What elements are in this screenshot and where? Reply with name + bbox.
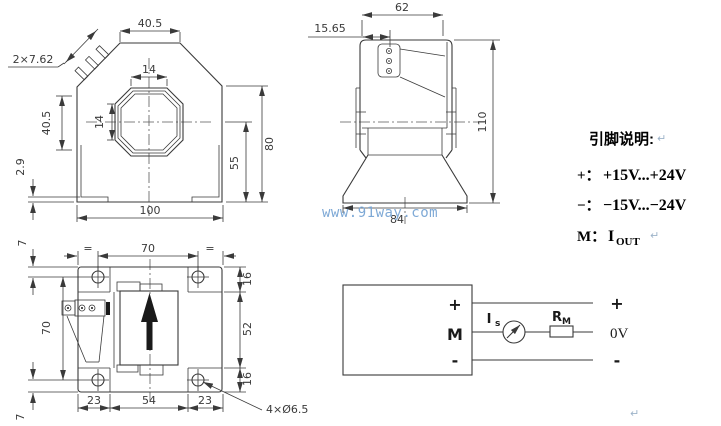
output-minus-label: - <box>614 351 621 370</box>
current-sensor-dimension-drawing: 40.5 2×7.62 14 14 40.5 <box>0 0 721 426</box>
current-label-sub: s <box>495 319 500 329</box>
svg-text:100: 100 <box>140 204 161 217</box>
svg-text:40.5: 40.5 <box>138 17 163 30</box>
svg-text:70: 70 <box>40 321 53 335</box>
resistor-label-sub: M <box>562 317 571 327</box>
side-column <box>368 128 442 155</box>
svg-text:110: 110 <box>476 112 489 133</box>
svg-text:16: 16 <box>241 372 254 386</box>
dim-front-foot: 2.9 <box>14 158 80 220</box>
resistor-label: R <box>552 310 562 325</box>
dim-plan-edge-to-hole-bottom: 7 <box>14 362 78 421</box>
dim-front-top-width: 40.5 <box>120 17 180 42</box>
plan-connector <box>62 300 110 362</box>
pin-m-value-sub: OUT <box>616 236 641 248</box>
ammeter <box>503 321 525 343</box>
paragraph-mark-bottom: ↵ <box>630 407 639 420</box>
dim-front-pin-pitch: 2×7.62 <box>8 29 98 67</box>
terminal-plus-label: + <box>448 295 461 314</box>
svg-text:70: 70 <box>141 242 155 255</box>
side-body-outline <box>360 40 452 158</box>
svg-text:23: 23 <box>198 394 212 407</box>
dim-front-inner-height: 55 <box>225 122 252 202</box>
svg-text:16: 16 <box>241 272 254 286</box>
dim-plan-right-heights: 16 52 16 <box>224 267 254 392</box>
terminal-minus-label: - <box>452 351 459 370</box>
svg-text:7: 7 <box>14 414 27 421</box>
svg-text:14: 14 <box>142 63 156 76</box>
pin-m-value: I <box>608 228 614 245</box>
side-view: 62 15.65 110 84 <box>308 1 500 226</box>
svg-text:62: 62 <box>395 1 409 14</box>
output-plus-label: + <box>610 294 623 313</box>
front-view: 40.5 2×7.62 14 14 40.5 <box>8 17 276 222</box>
svg-text:80: 80 <box>263 137 276 151</box>
svg-text:40.5: 40.5 <box>40 111 53 136</box>
terminal-m-label: M <box>447 325 463 344</box>
connection-circuit: + M - I s R M + 0V - <box>343 285 629 375</box>
svg-text:=: = <box>205 242 214 255</box>
svg-text:14: 14 <box>93 115 106 129</box>
watermark: www.91way.com <box>322 205 438 221</box>
paragraph-mark-iout: ↵ <box>650 229 659 242</box>
front-pins <box>75 46 109 80</box>
side-base-outline <box>343 155 467 203</box>
dim-plan-hole-span-vertical: 70 <box>40 277 87 380</box>
pin-description: 引脚说明: ↵ +： +15V...+24V −： −15V...−24V M：… <box>577 130 687 248</box>
paragraph-mark-title: ↵ <box>657 132 666 145</box>
dim-front-left-height: 40.5 <box>40 96 72 150</box>
pin-plus-value: +15V...+24V <box>603 167 687 184</box>
dim-side-top-width: 62 <box>362 1 443 36</box>
svg-text:54: 54 <box>142 394 156 407</box>
dim-front-bottom-width: 100 <box>77 204 223 222</box>
plan-view: 7 70 = = 70 16 52 16 <box>14 240 308 421</box>
dim-side-pin-offset: 15.65 <box>308 22 390 47</box>
dim-plan-edge-to-hole-top: 7 <box>16 240 87 296</box>
front-mounting-bracket <box>81 145 219 202</box>
output-zero-label: 0V <box>610 326 629 342</box>
svg-text:2.9: 2.9 <box>14 158 27 176</box>
pin-description-title: 引脚说明: <box>589 130 654 148</box>
current-label: I <box>487 312 492 327</box>
dim-front-total-height: 80 <box>226 86 276 202</box>
svg-text:2×7.62: 2×7.62 <box>13 53 54 66</box>
dim-plan-bottom-widths: 23 54 23 <box>78 394 223 412</box>
svg-text:=: = <box>83 242 92 255</box>
svg-text:7: 7 <box>16 240 29 247</box>
svg-text:52: 52 <box>241 322 254 336</box>
side-din-clips <box>356 88 456 148</box>
pin-plus-label: +： <box>577 168 601 184</box>
measuring-resistor <box>550 326 573 337</box>
callout-mounting-holes: 4×Ø6.5 <box>203 382 308 416</box>
svg-text:55: 55 <box>228 156 241 170</box>
technical-drawing-page: 40.5 2×7.62 14 14 40.5 <box>0 0 721 426</box>
pin-m-label: M： <box>577 229 606 245</box>
svg-text:15.65: 15.65 <box>314 22 346 35</box>
pin-minus-value: −15V...−24V <box>603 197 687 214</box>
pin-minus-label: −： <box>577 198 601 214</box>
svg-text:23: 23 <box>87 394 101 407</box>
dim-side-total-height: 110 <box>454 40 500 203</box>
plan-core-bumps <box>117 282 163 375</box>
svg-text:4×Ø6.5: 4×Ø6.5 <box>266 403 308 416</box>
current-direction-arrow <box>141 293 158 350</box>
side-connector <box>378 44 445 97</box>
